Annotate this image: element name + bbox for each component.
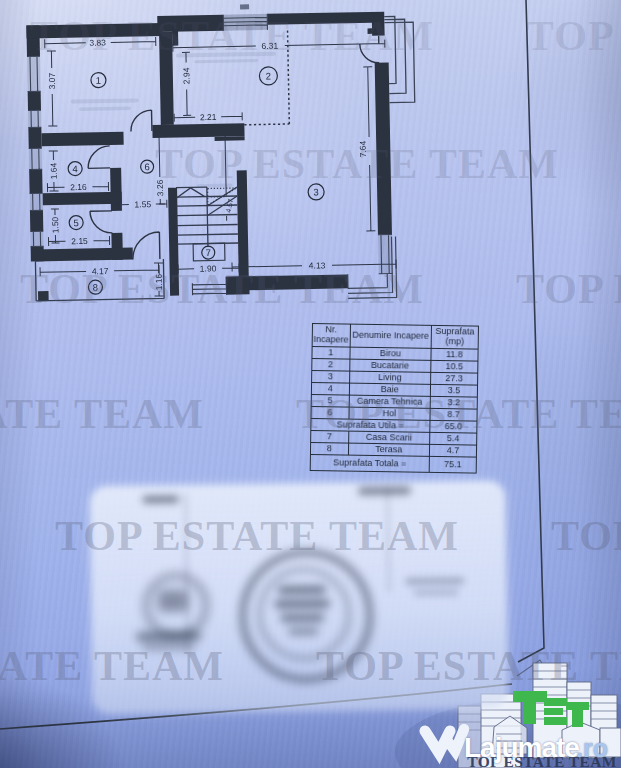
svg-text:Lajumate: Lajumate xyxy=(464,732,579,763)
svg-text:.ro: .ro xyxy=(576,734,608,762)
